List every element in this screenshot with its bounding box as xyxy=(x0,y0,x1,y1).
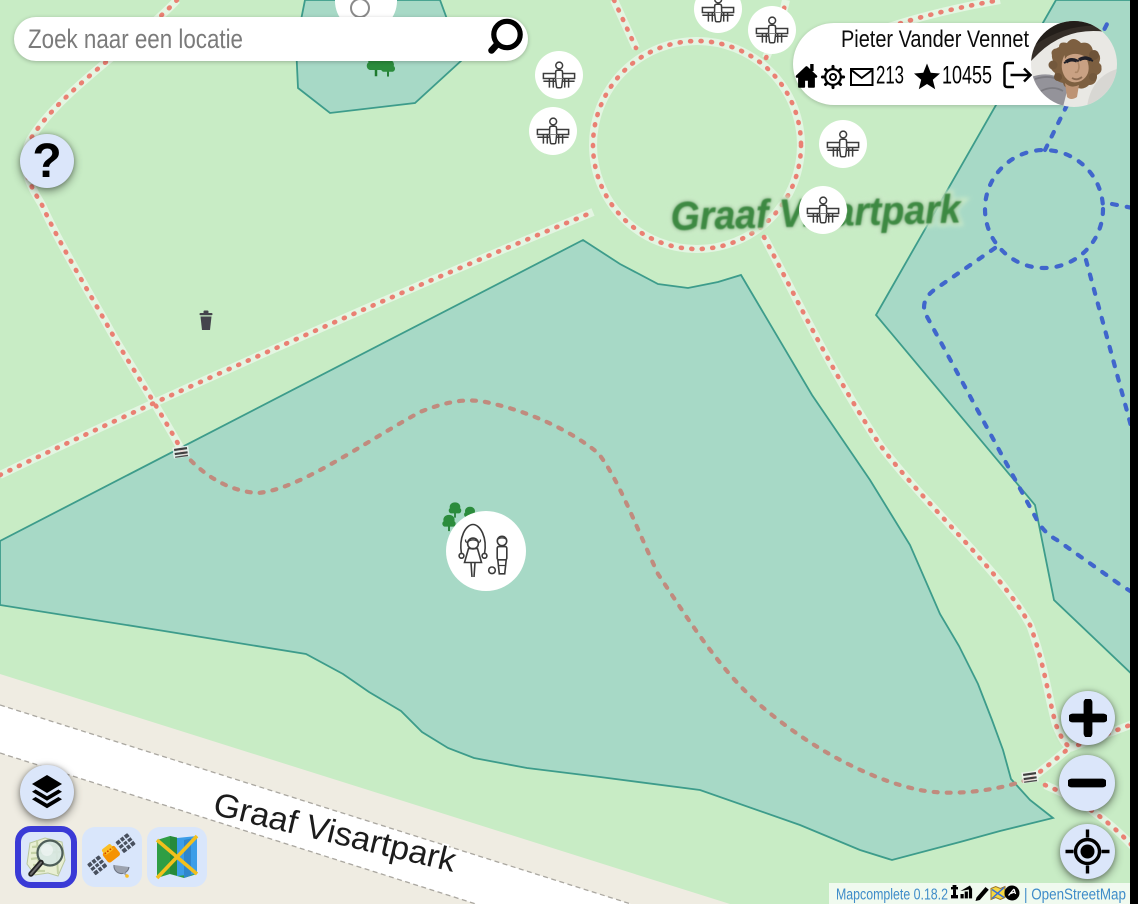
svg-text:Pieter Vander Vennet: Pieter Vander Vennet xyxy=(841,26,1029,53)
svg-text:| OpenStreetMap: | OpenStreetMap xyxy=(1024,886,1126,903)
svg-text:213: 213 xyxy=(876,62,904,90)
svg-text:Zoek naar een locatie: Zoek naar een locatie xyxy=(28,24,243,54)
svg-text:Mapcomplete 0.18.2: Mapcomplete 0.18.2 xyxy=(836,886,948,903)
svg-text:10455: 10455 xyxy=(942,62,992,90)
